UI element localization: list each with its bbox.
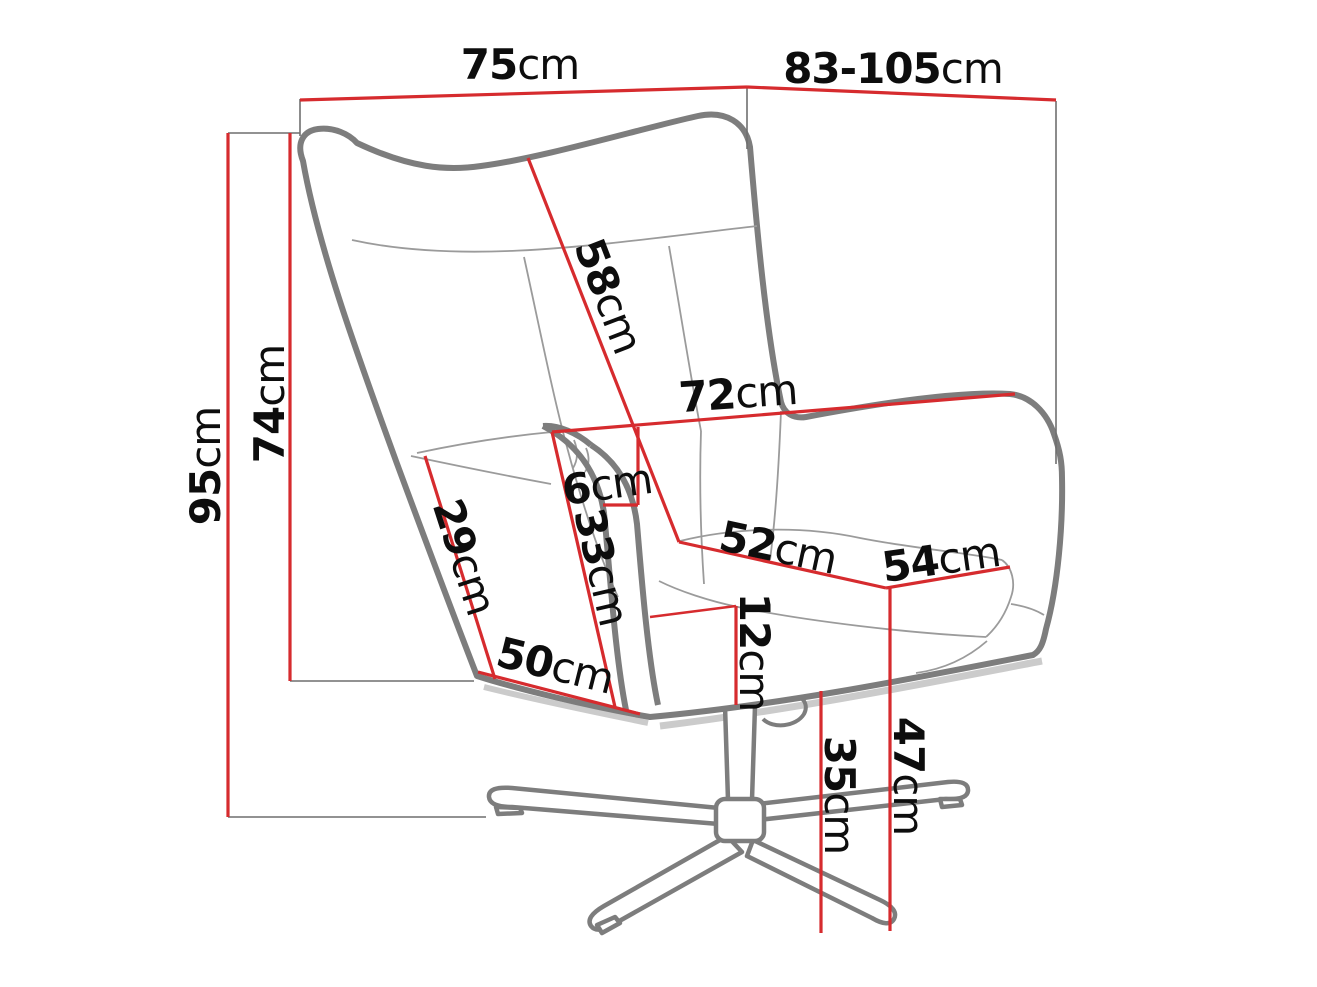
- dim-label-height-total: 95cm: [185, 407, 227, 525]
- dim-unit: cm: [730, 649, 779, 711]
- dim-unit: cm: [941, 44, 1003, 93]
- base-leg-left: [489, 788, 719, 824]
- dim-label-base-height: 35cm: [818, 736, 860, 854]
- dim-value: 35: [815, 736, 864, 792]
- dim-value: 75: [461, 40, 517, 89]
- dim-value: 72: [677, 369, 737, 422]
- dim-value: 83-105: [783, 44, 941, 93]
- base-hub: [716, 799, 764, 841]
- dim-unit: cm: [587, 454, 655, 511]
- dim-label-width-total: 75cm: [461, 44, 579, 86]
- dim-unit: cm: [733, 365, 798, 418]
- dim-label-seat-thickness: 12cm: [733, 593, 775, 711]
- base-leg-front-left: [590, 836, 742, 930]
- dim-label-depth-range: 83-105cm: [783, 48, 1003, 90]
- dim-value: 95: [181, 469, 230, 525]
- dim-unit: cm: [935, 527, 1003, 584]
- dimension-diagram-canvas: 75cm 83-105cm 95cm 74cm 58cm 72cm 6cm 29…: [0, 0, 1317, 987]
- dim-unit: cm: [245, 345, 294, 407]
- dim-value: 47: [884, 717, 933, 773]
- dim-label-backrest-width: 72cm: [677, 369, 798, 419]
- dim-unit: cm: [815, 792, 864, 854]
- dim-value: 74: [245, 407, 294, 463]
- dim-value: 54: [879, 536, 942, 592]
- dim-value: 12: [730, 593, 779, 649]
- dim-unit: cm: [884, 773, 933, 835]
- dim-label-seat-height: 47cm: [887, 717, 929, 835]
- dim-unit: cm: [517, 40, 579, 89]
- base-leg-back-right-foot: [940, 799, 962, 807]
- base-leg-left-foot: [496, 807, 522, 814]
- dim-unit: cm: [181, 407, 230, 469]
- base-column: [725, 706, 755, 800]
- dim-label-height-back: 74cm: [249, 345, 291, 463]
